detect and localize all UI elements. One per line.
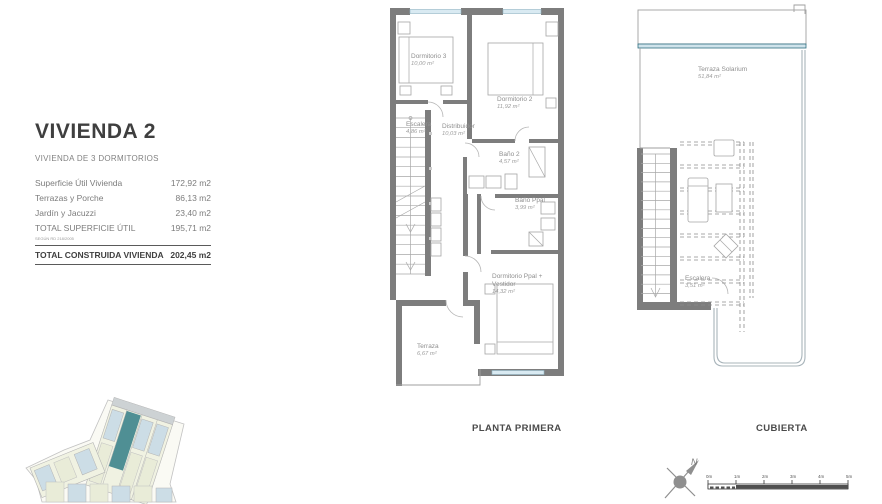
room-label-dormitorio2: Dormitorio 2 11,92 m² <box>497 96 543 111</box>
room-label-escalera: Escalera 4,86 m² <box>406 121 442 136</box>
room-label-solarium: Terraza Solarium 51,84 m² <box>698 66 764 81</box>
row-label: Superficie Útil Vivienda <box>35 178 122 188</box>
scale-tick-label: 2m <box>762 474 769 479</box>
row-value: 195,71 m2 <box>171 223 211 233</box>
row-value: 86,13 m2 <box>176 193 211 203</box>
scale-tick-label: 3m <box>790 474 797 479</box>
row-value: 202,45 m2 <box>170 250 211 260</box>
north-label: N <box>691 457 698 467</box>
room-label-dormitorio3: Dormitorio 3 10,00 m² <box>411 53 461 68</box>
caption-planta-primera: PLANTA PRIMERA <box>472 423 562 434</box>
room-label-banoppal: Baño Ppal 3,99 m² <box>515 197 555 212</box>
room-label-cubierta-escalera: Escalera 3,51 m² <box>685 275 721 290</box>
regulation-note: SEGÚN RD 218/2005 <box>35 236 211 241</box>
staircase <box>396 117 425 275</box>
row-value: 172,92 m2 <box>171 178 211 188</box>
site-key-plan <box>12 388 237 504</box>
stair-treads <box>641 154 670 297</box>
scale-tick-label: 4m <box>818 474 825 479</box>
caption-cubierta: CUBIERTA <box>756 423 808 434</box>
row-label: TOTAL SUPERFICIE ÚTIL <box>35 223 135 233</box>
dwelling-subtitle: VIVIENDA DE 3 DORMITORIOS <box>35 154 211 163</box>
cubierta-plan <box>628 2 818 394</box>
scale-tick-label: 0m <box>706 474 713 479</box>
scale-tick-label: 5m <box>846 474 853 479</box>
table-row-total: TOTAL CONSTRUIDA VIVIENDA 202,45 m2 <box>35 245 211 265</box>
room-label-terraza: Terraza 6,67 m² <box>417 343 453 358</box>
row-label: TOTAL CONSTRUIDA VIVIENDA <box>35 250 164 260</box>
table-row: Superficie Útil Vivienda 172,92 m2 <box>35 178 211 188</box>
dwelling-title: VIVIENDA 2 <box>35 120 211 144</box>
table-row: Jardín y Jacuzzi 23,40 m2 <box>35 208 211 218</box>
table-row: TOTAL SUPERFICIE ÚTIL 195,71 m2 <box>35 223 211 233</box>
scale-tick-label: 1m <box>734 474 741 479</box>
scale-bar: 0m 1m 2m 3m 4m 5m <box>700 470 865 500</box>
info-panel: VIVIENDA 2 VIVIENDA DE 3 DORMITORIOS Sup… <box>35 120 211 265</box>
surface-table: Superficie Útil Vivienda 172,92 m2 Terra… <box>35 178 211 265</box>
floor-plan-sheet: VIVIENDA 2 VIVIENDA DE 3 DORMITORIOS Sup… <box>0 0 882 504</box>
room-label-distribuidor: Distribuidor 10,03 m² <box>442 123 486 138</box>
row-label: Terrazas y Porche <box>35 193 104 203</box>
roof-furniture <box>688 140 738 258</box>
room-label-dormppal: Dormitorio Ppal + Vestidor 14,32 m² <box>492 273 550 296</box>
row-label: Jardín y Jacuzzi <box>35 208 96 218</box>
table-row: Terrazas y Porche 86,13 m2 <box>35 193 211 203</box>
row-value: 23,40 m2 <box>176 208 211 218</box>
room-label-bano2: Baño 2 4,57 m² <box>499 151 535 166</box>
